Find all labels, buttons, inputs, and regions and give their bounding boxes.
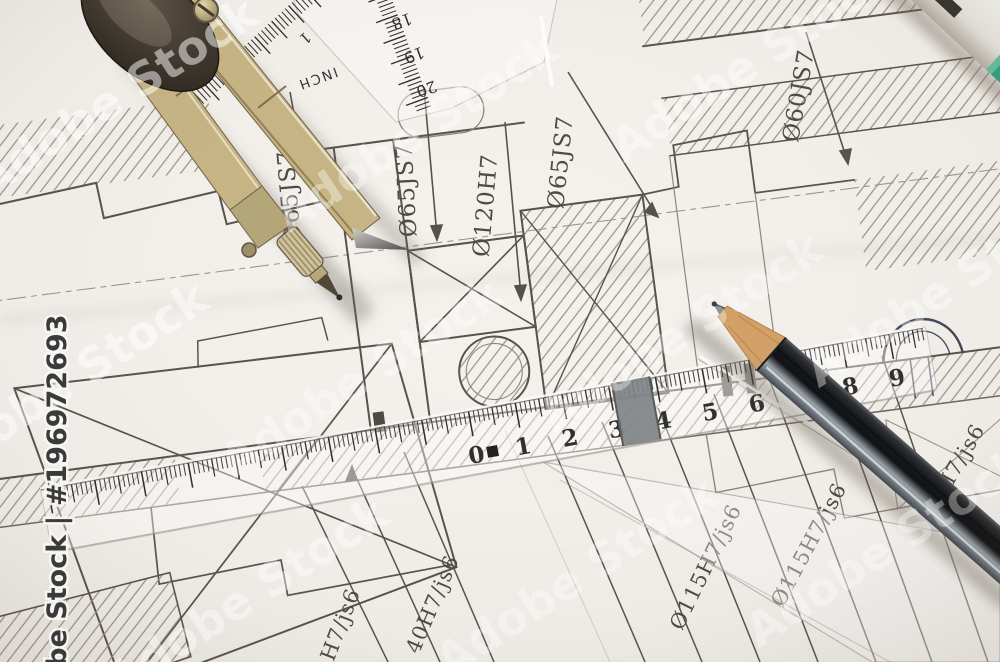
photo-canvas: Ø65JS7 Ø65JS7 Ø120H7 Ø65JS7 Ø60JS7 H7/js… xyxy=(0,0,1000,662)
watermark-credit: Adobe Stock | #196972693 xyxy=(42,314,73,662)
stock-photo-drafting-scene: Ø65JS7 Ø65JS7 Ø120H7 Ø65JS7 Ø60JS7 H7/js… xyxy=(0,0,1000,662)
